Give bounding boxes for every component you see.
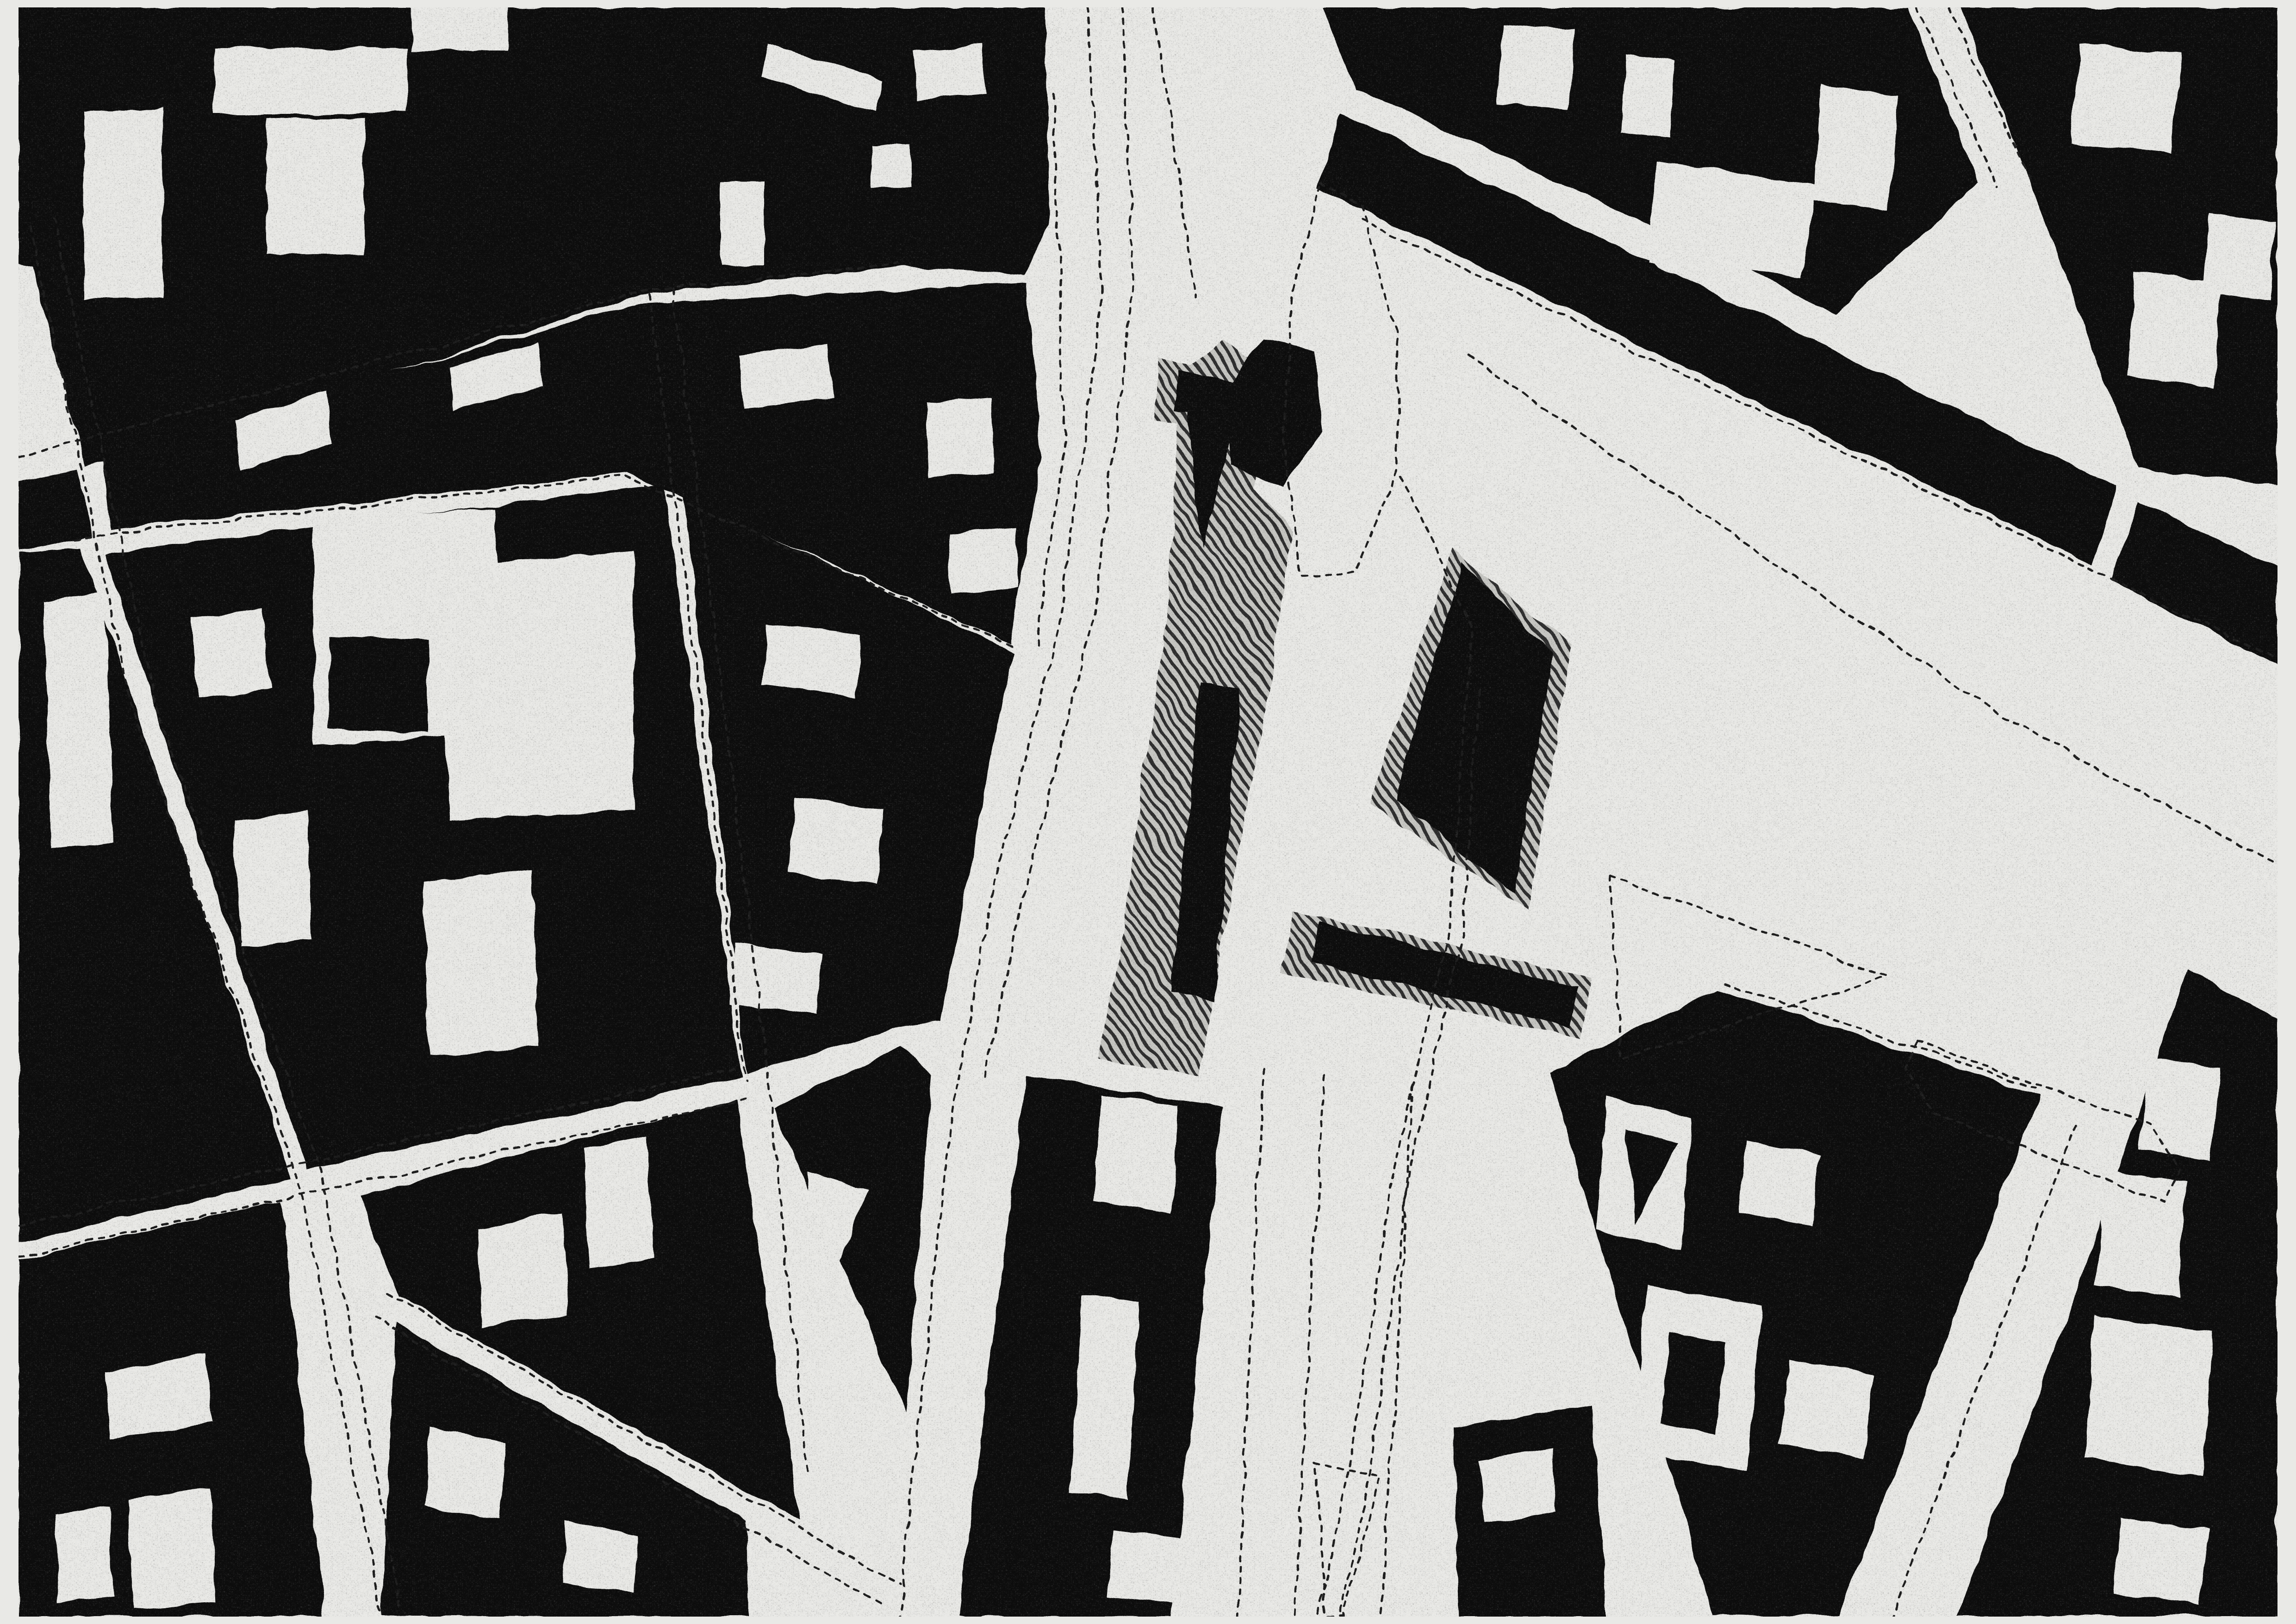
map-svg	[19, 7, 2277, 1617]
grain-light-overlay	[19, 7, 2277, 1617]
figure-ground-map	[19, 7, 2277, 1617]
